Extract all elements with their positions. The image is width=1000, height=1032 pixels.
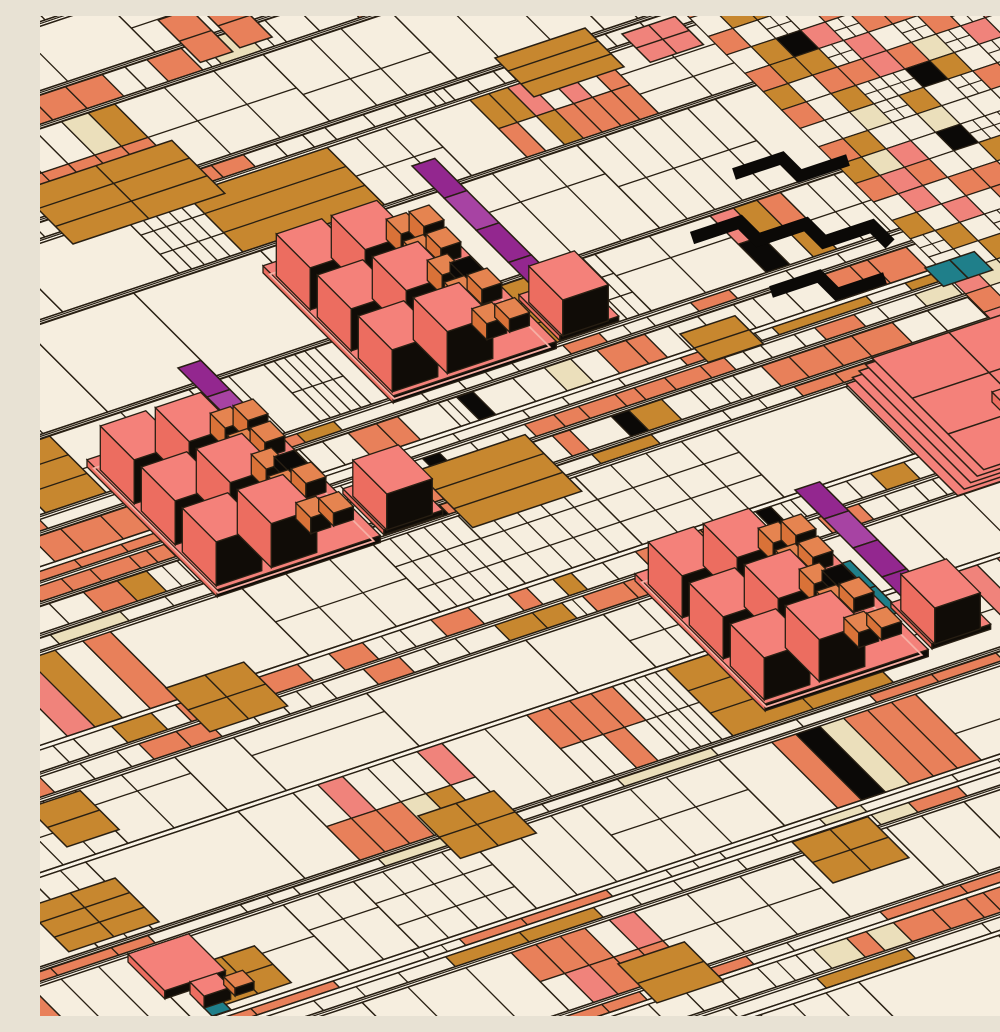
generative-artwork bbox=[40, 16, 1000, 1016]
artwork-canvas bbox=[40, 16, 1000, 1016]
